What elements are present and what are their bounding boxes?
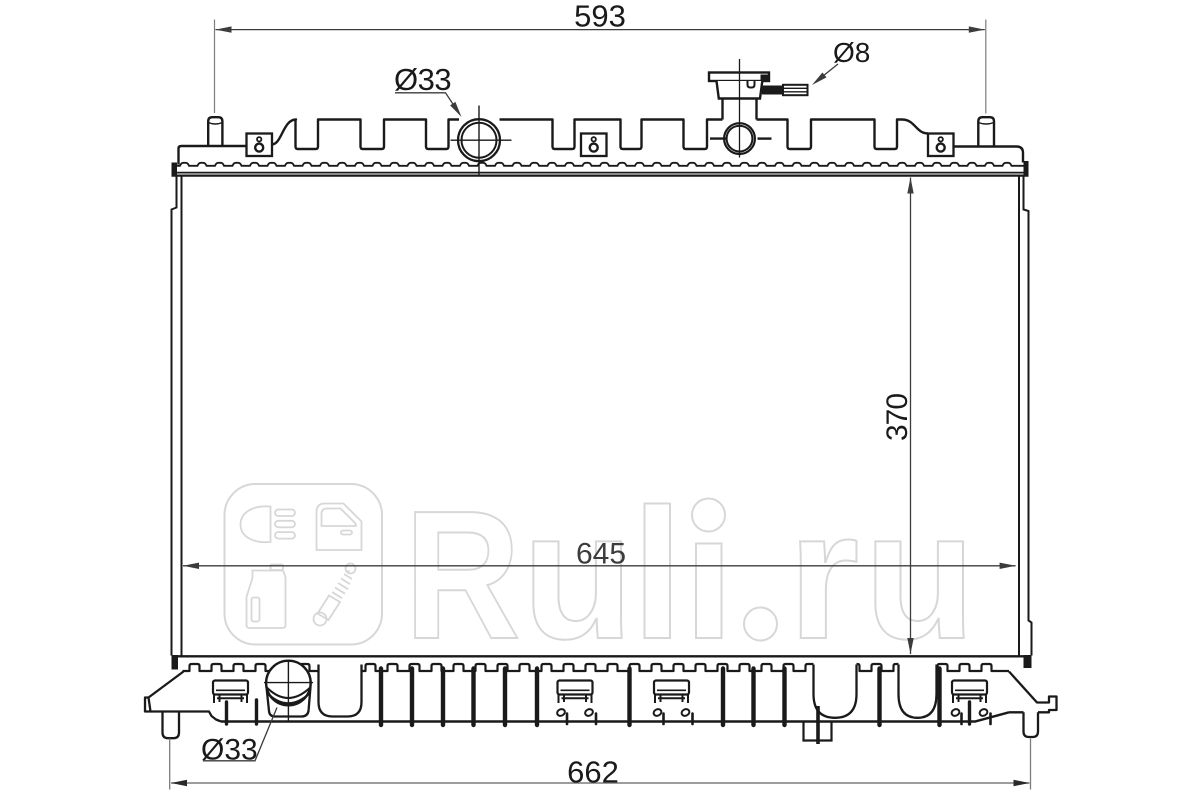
svg-text:Ø33: Ø33 (201, 734, 258, 767)
svg-text:593: 593 (574, 0, 626, 34)
svg-text:u: u (522, 472, 634, 677)
svg-text:u: u (864, 472, 976, 677)
svg-text:Ø33: Ø33 (394, 62, 451, 97)
svg-text:370: 370 (881, 394, 914, 441)
svg-text:645: 645 (576, 538, 626, 571)
svg-text:r: r (788, 472, 859, 677)
svg-text:Ø8: Ø8 (833, 37, 870, 68)
svg-text:R: R (404, 472, 520, 677)
svg-text:662: 662 (567, 755, 619, 790)
